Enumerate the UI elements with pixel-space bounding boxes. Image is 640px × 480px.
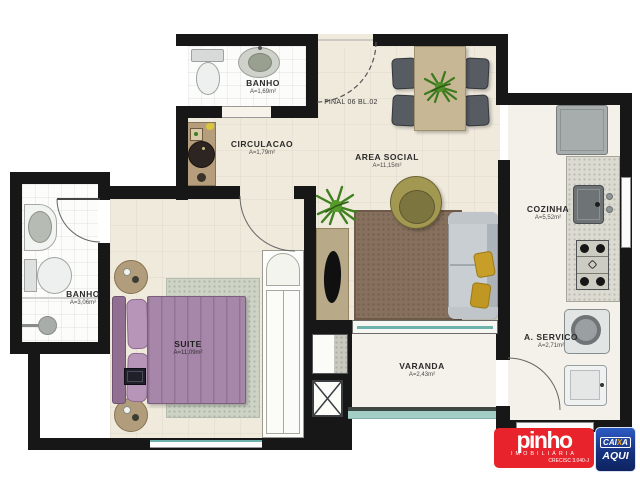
cooktop-line-2 <box>577 273 608 274</box>
servico-area: A=2,71m² <box>524 343 578 349</box>
armchair-seat <box>399 190 435 224</box>
kitchen-faucet <box>595 202 600 207</box>
suite-window <box>150 440 262 448</box>
burner-4 <box>596 277 605 286</box>
pinho-license: CRECISC 3.040-J <box>548 459 589 464</box>
banho2-basin-bowl <box>28 211 52 243</box>
banho1-door-opening <box>222 106 271 118</box>
circulacao-name: CIRCULACAO <box>231 139 293 149</box>
area-social-name: AREA SOCIAL <box>355 152 419 162</box>
laundry-faucet <box>600 383 604 387</box>
room-label-cozinha: COZINHA A=5,52m² <box>527 204 569 221</box>
suite-area: A=11,09m² <box>173 350 202 356</box>
sofa-pillow-1 <box>473 251 496 279</box>
burner-1 <box>580 244 589 253</box>
wall-banho2-top <box>10 172 110 184</box>
room-label-varanda: VARANDA A=2,43m² <box>399 361 444 378</box>
unit-label: FINAL 06 BL.02 <box>324 99 377 106</box>
bed-pillow-top <box>126 299 149 350</box>
cabinet-small-dot <box>197 173 206 182</box>
floor-entry-patch <box>318 34 373 48</box>
nightstand-bottom-decor-light <box>123 406 131 414</box>
wall-banho2-right-top <box>98 184 110 200</box>
burner-center <box>588 260 598 270</box>
caixa-aqui: AQUI <box>602 450 628 462</box>
servico-name: A. SERVICO <box>524 332 578 342</box>
wall-suite-top <box>98 186 240 199</box>
nightstand-top-decor-dark <box>132 276 139 283</box>
laundry-tank-basin <box>570 370 600 400</box>
sofa-armrest-bottom <box>448 307 498 319</box>
wall-kitchen-top <box>496 93 632 105</box>
banho1-name: BANHO <box>246 78 280 88</box>
cozinha-name: COZINHA <box>527 204 569 214</box>
nightstand-top-decor-light <box>123 268 131 276</box>
caixa-wordmark: CAIXA <box>600 437 631 449</box>
floor-plan: BANHO A=1,69m² FINAL 06 BL.02 CIRCULACAO… <box>0 0 640 480</box>
varanda-railing <box>348 411 496 419</box>
room-label-banho2: BANHO A=3,06m² <box>66 289 100 306</box>
faucet-knob-2 <box>606 206 613 213</box>
glass-door-pane <box>357 326 493 329</box>
cabinet-bowl <box>188 141 215 168</box>
banho2-name: BANHO <box>66 289 100 299</box>
wardrobe-doors <box>266 290 300 434</box>
sofa-pillow-2 <box>469 282 491 309</box>
wall-left-outer <box>10 172 22 354</box>
banho1-area: A=1,69m² <box>246 89 280 95</box>
fridge-inner <box>560 109 604 151</box>
room-label-suite: SUITE A=11,09m² <box>173 339 202 356</box>
dining-table <box>414 46 466 131</box>
wardrobe-door-divider <box>283 291 284 433</box>
pinho-brand: pinho <box>516 432 571 450</box>
bed-tray-inner <box>127 371 143 382</box>
sofa-armrest-top <box>448 212 498 224</box>
wall-right-outer <box>620 93 632 432</box>
circulacao-area: A=1,79m² <box>231 150 293 156</box>
burner-3 <box>580 277 589 286</box>
duct-xbox <box>312 380 343 417</box>
bed-headboard <box>112 296 126 404</box>
caixa-text-post: A <box>622 438 628 447</box>
toilet-bowl <box>196 62 220 95</box>
banho2-toilet-tank <box>24 259 37 292</box>
unit-text: FINAL 06 BL.02 <box>324 99 377 106</box>
toilet-tank <box>191 49 224 62</box>
shaft-box <box>312 334 348 374</box>
wall-suite-left-lower <box>28 346 40 450</box>
cooktop <box>576 240 609 290</box>
area-social-area: A=11,15m² <box>355 163 419 169</box>
pinho-logo: pinho IMOBILIÁRIA CRECISC 3.040-J <box>494 428 594 468</box>
nightstand-top <box>114 260 148 294</box>
wall-top-right <box>373 34 508 46</box>
dining-chair-tr <box>463 57 490 89</box>
banho2-area: A=3,06m² <box>66 300 100 306</box>
caixa-badge: CAIXA AQUI <box>595 427 636 472</box>
suite-name: SUITE <box>173 339 202 349</box>
room-label-circulacao: CIRCULACAO A=1,79m² <box>231 139 293 156</box>
caixa-text-pre: CAI <box>603 438 617 447</box>
faucet-knob-1 <box>606 193 613 200</box>
washbasin-faucet <box>258 46 262 50</box>
nightstand-bottom-decor-dark <box>132 414 139 421</box>
wall-banho1-bottom-right <box>271 106 318 118</box>
wall-banho1-top <box>176 34 318 46</box>
wardrobe-arch <box>266 253 300 286</box>
wall-circulacao-left <box>176 106 188 200</box>
room-label-area-social: AREA SOCIAL A=11,15m² <box>355 152 419 169</box>
wall-kitchen-living <box>498 160 510 334</box>
dining-chair-br <box>463 94 490 126</box>
room-label-servico: A. SERVICO A=2,71m² <box>524 332 578 349</box>
room-label-banho1: BANHO A=1,69m² <box>246 78 280 95</box>
wall-suite-top-stub <box>294 186 304 199</box>
varanda-area: A=2,43m² <box>399 372 444 378</box>
burner-2 <box>596 244 605 253</box>
cabinet-bowl-highlight <box>202 147 205 150</box>
cozinha-area: A=5,52m² <box>527 215 569 221</box>
glass-door <box>352 320 498 334</box>
kitchen-window <box>621 177 631 248</box>
cabinet-frame-plant-dot <box>194 132 198 136</box>
wall-banho2-bottom <box>10 342 110 354</box>
shower-head <box>38 316 57 335</box>
washbasin-bowl <box>248 53 272 72</box>
varanda-name: VARANDA <box>399 361 444 371</box>
pinho-subtitle: IMOBILIÁRIA <box>511 452 577 458</box>
cooktop-line-1 <box>577 256 608 257</box>
shaft-box-band <box>334 335 347 373</box>
